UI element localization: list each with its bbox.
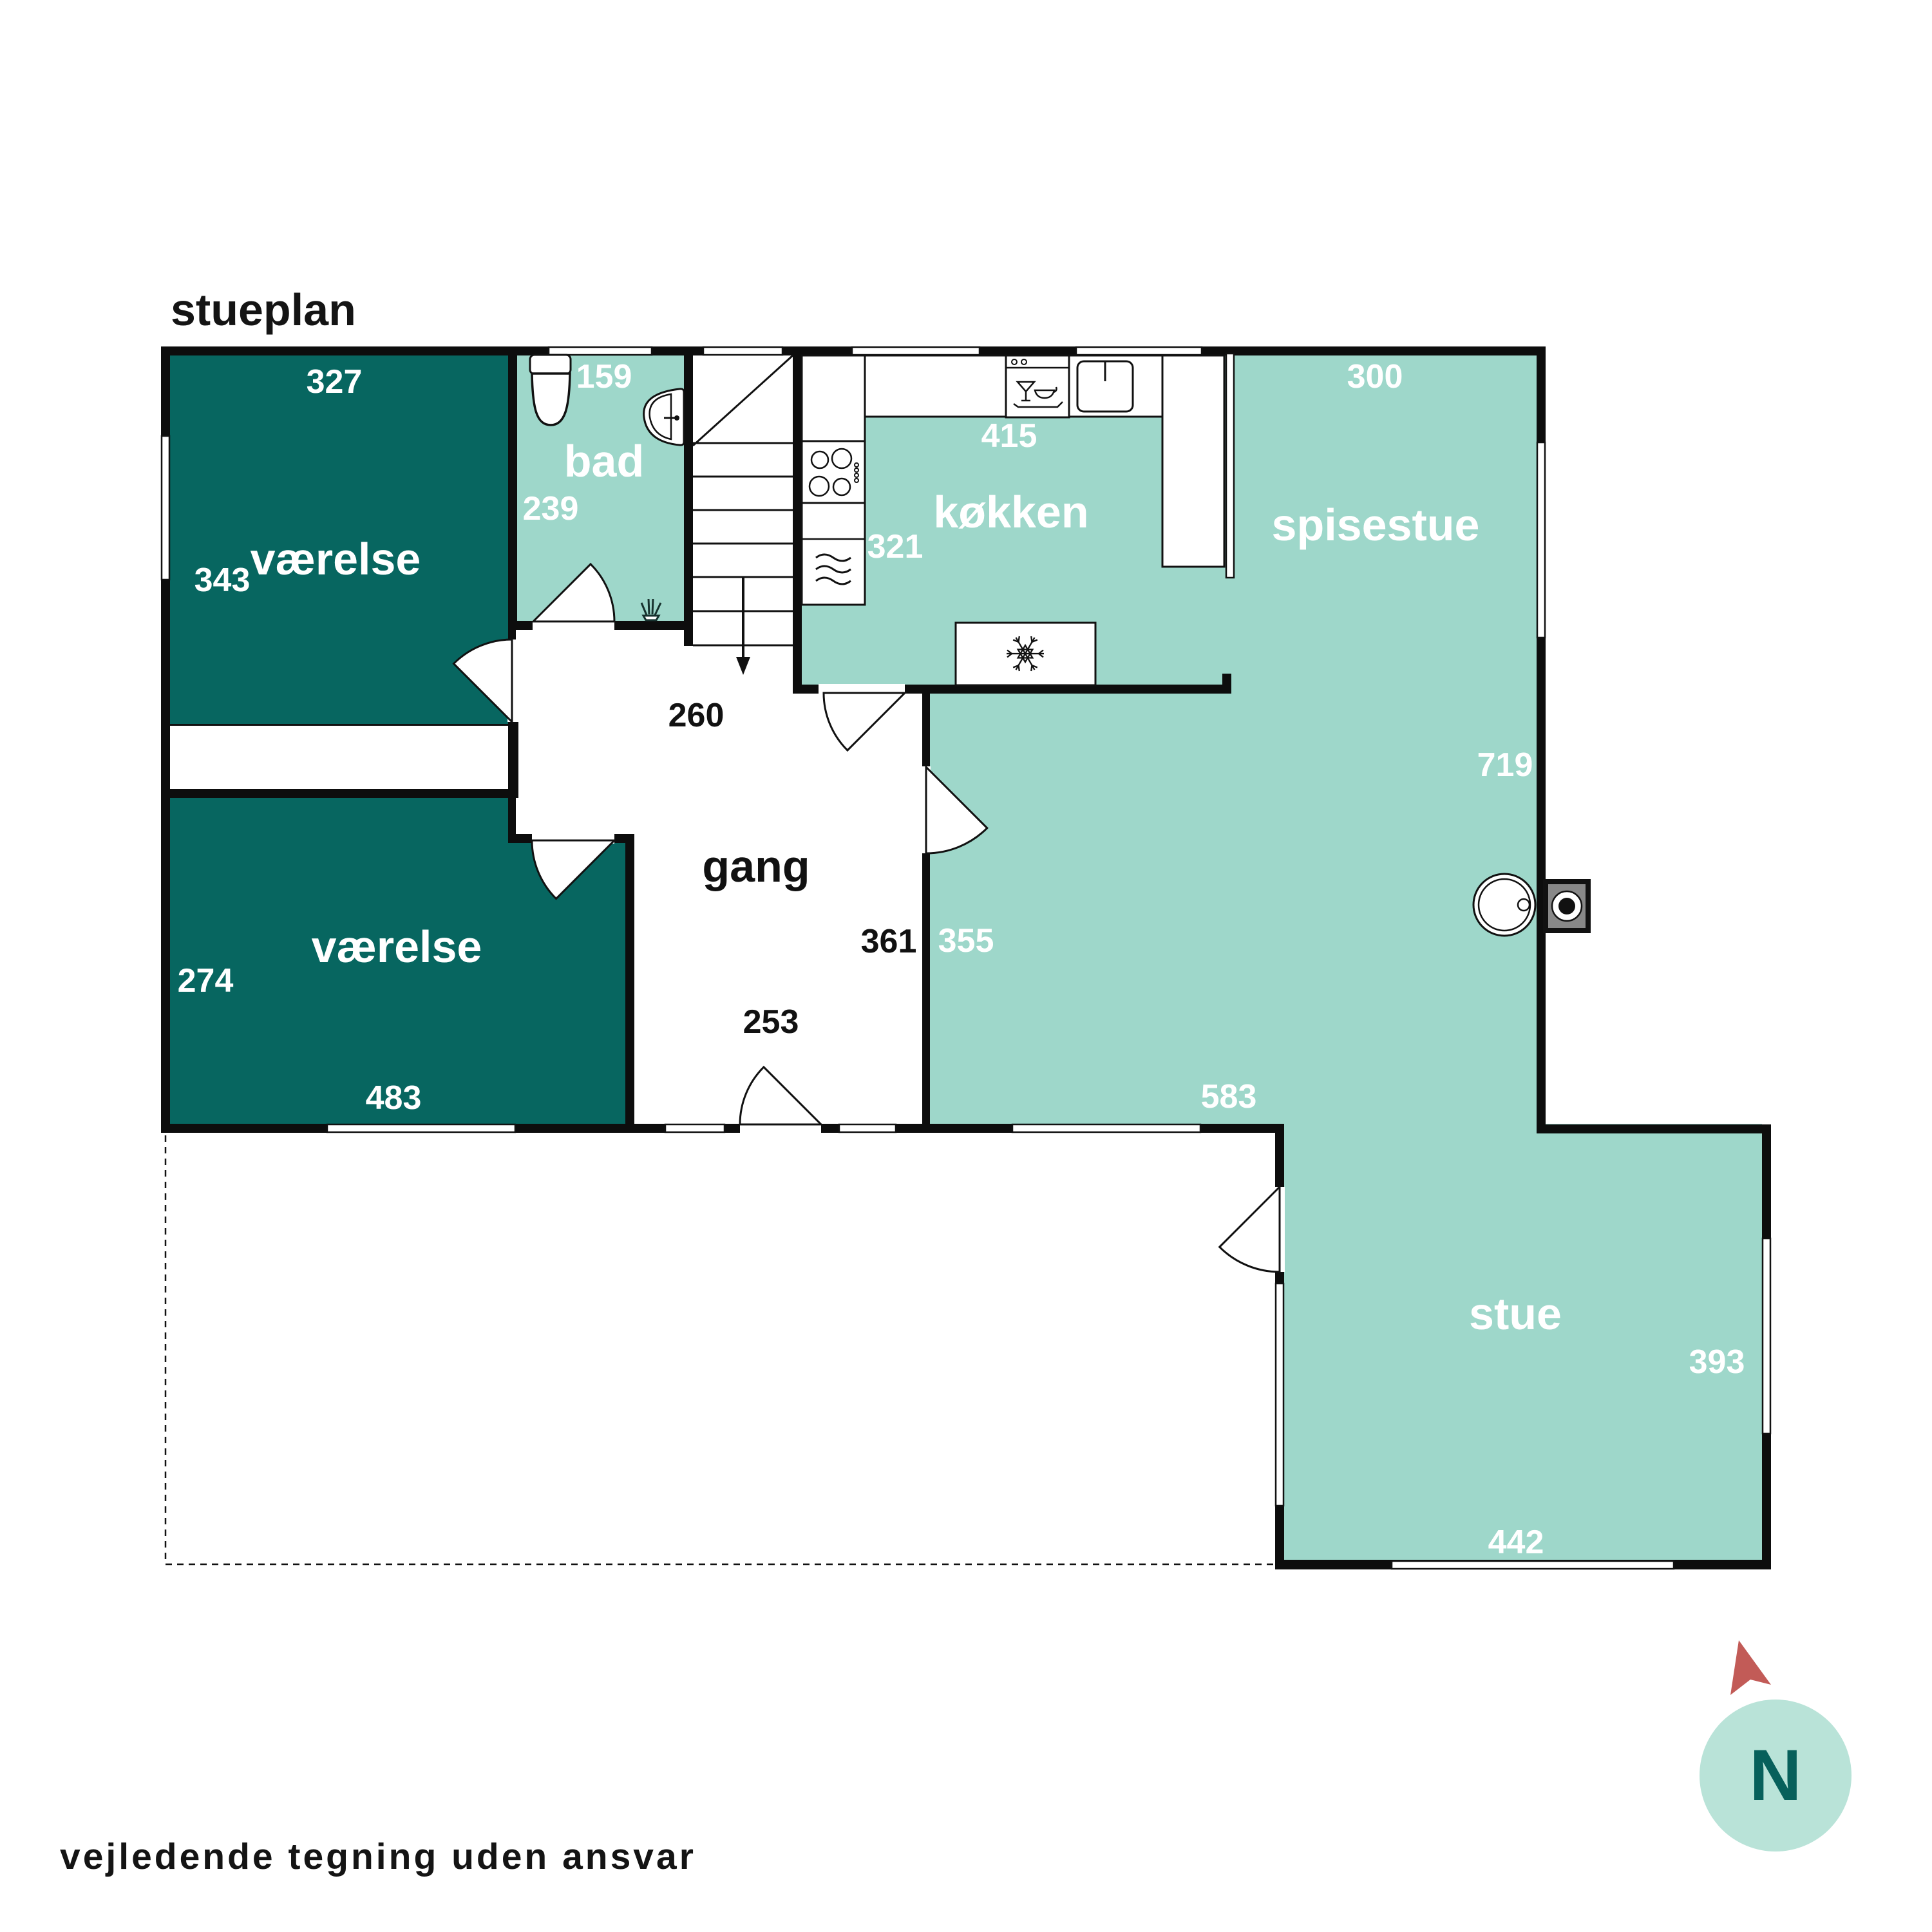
svg-text:361: 361 xyxy=(861,923,917,960)
svg-text:239: 239 xyxy=(523,490,579,527)
svg-text:719: 719 xyxy=(1477,746,1533,784)
svg-text:415: 415 xyxy=(981,417,1037,455)
svg-text:værelse: værelse xyxy=(251,534,421,584)
svg-text:274: 274 xyxy=(178,962,234,999)
svg-text:253: 253 xyxy=(743,1003,799,1041)
svg-text:værelse: værelse xyxy=(312,922,482,972)
svg-text:355: 355 xyxy=(938,922,994,960)
svg-text:327: 327 xyxy=(307,363,363,401)
svg-text:483: 483 xyxy=(366,1079,422,1117)
svg-text:583: 583 xyxy=(1201,1078,1257,1115)
svg-text:stueplan: stueplan xyxy=(171,285,356,335)
svg-text:159: 159 xyxy=(576,358,632,395)
svg-text:300: 300 xyxy=(1347,358,1403,395)
svg-text:442: 442 xyxy=(1488,1524,1544,1561)
svg-text:gang: gang xyxy=(702,841,810,891)
svg-text:vejledende tegning uden ansvar: vejledende tegning uden ansvar xyxy=(60,1836,696,1877)
svg-text:343: 343 xyxy=(194,562,251,599)
svg-text:køkken: køkken xyxy=(933,487,1088,537)
svg-text:bad: bad xyxy=(564,436,644,486)
svg-text:stue: stue xyxy=(1469,1289,1562,1339)
svg-text:spisestue: spisestue xyxy=(1272,500,1480,550)
svg-text:393: 393 xyxy=(1689,1343,1745,1381)
svg-text:260: 260 xyxy=(668,697,724,734)
svg-text:321: 321 xyxy=(867,528,923,565)
svg-text:N: N xyxy=(1750,1735,1802,1815)
